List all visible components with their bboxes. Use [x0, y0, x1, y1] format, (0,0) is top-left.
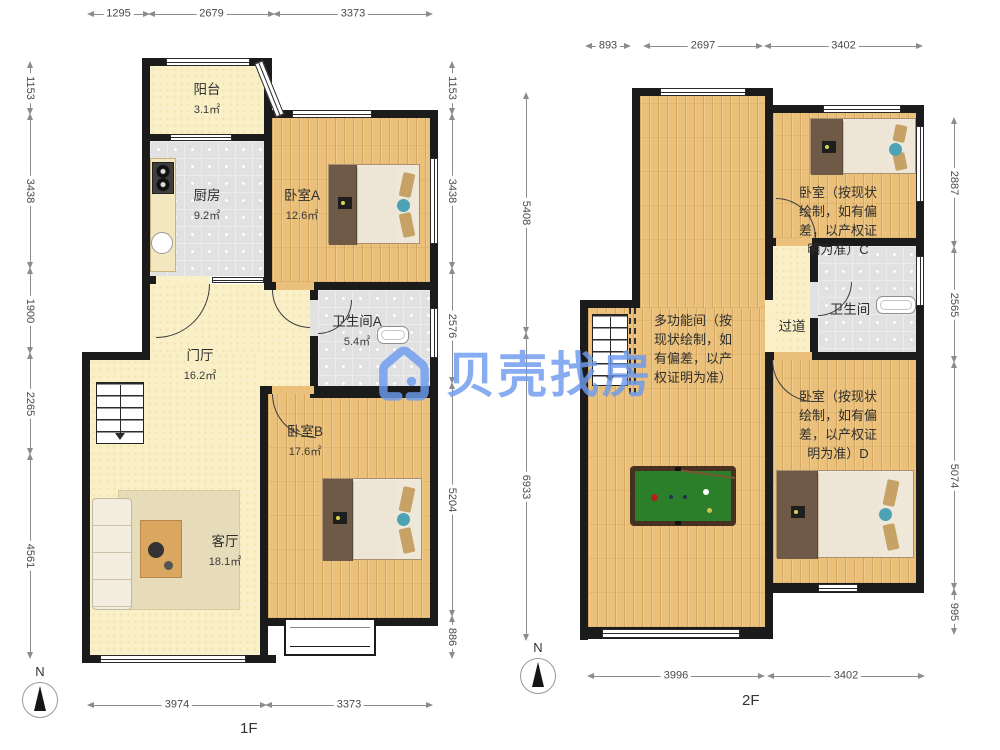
- room-floor-corridor: [773, 246, 810, 352]
- room-area: 16.2㎡: [152, 367, 248, 383]
- billiard-pocket: [675, 467, 681, 471]
- dimension-label: 3438: [24, 176, 36, 206]
- dimension-line: 3373: [266, 699, 432, 711]
- dimension-label: 3438: [446, 176, 458, 206]
- dimension-line: 3373: [274, 8, 432, 20]
- bed-pillow: [399, 172, 416, 198]
- kettle: [148, 542, 164, 558]
- room-label-bedroomB: 卧室B17.6㎡: [253, 424, 357, 459]
- dimension-line: 893: [586, 40, 630, 52]
- window: [660, 88, 746, 96]
- dimension-line: 995: [948, 589, 960, 634]
- room-name: 卧室B: [253, 424, 357, 441]
- dimension-label: 2265: [24, 388, 36, 418]
- staircase: [96, 382, 144, 444]
- bed-tv-dot: [336, 516, 340, 520]
- bed-round-pillow: [879, 508, 892, 521]
- room-label-living: 客厅18.1㎡: [176, 534, 274, 569]
- window: [292, 110, 372, 118]
- window: [818, 584, 858, 592]
- dimension-label: 886: [446, 625, 458, 649]
- dimension-line: 3974: [88, 699, 266, 711]
- window: [212, 277, 264, 283]
- dimension-label: 995: [948, 599, 960, 623]
- room-area: 12.6㎡: [250, 207, 354, 223]
- floor-label: 1F: [240, 720, 258, 737]
- dimension-line: 2697: [644, 40, 762, 52]
- dimension-line: 2265: [24, 353, 36, 454]
- kettle: [164, 561, 173, 570]
- dimension-line: 3438: [24, 114, 36, 268]
- floorplan-canvas: 阳台3.1㎡厨房9.2㎡卧室A12.6㎡卫生间A5.4㎡门厅16.2㎡卧室B17…: [0, 0, 1000, 750]
- dimension-line: 1295: [88, 8, 149, 20]
- dimension-label: 6933: [520, 471, 532, 501]
- dimension-label: 3974: [162, 698, 192, 711]
- bed-pillow: [399, 527, 416, 554]
- room-label-kitchen: 厨房9.2㎡: [162, 188, 252, 223]
- dimension-line: 3996: [588, 670, 764, 682]
- door-opening: [774, 352, 812, 360]
- bed-round-pillow: [397, 199, 410, 212]
- north-needle-icon: [532, 662, 544, 687]
- bed: [810, 118, 916, 174]
- dimension-line: 2565: [948, 247, 960, 362]
- bed-round-pillow: [889, 143, 902, 156]
- dimension-line: 1153: [24, 62, 36, 114]
- floor-label: 2F: [742, 692, 760, 709]
- dimension-line: 5408: [520, 93, 532, 333]
- room-label-bath: 卫生间: [808, 302, 892, 319]
- bed-pillow: [882, 479, 899, 507]
- dimension-line: 5204: [446, 383, 458, 616]
- bed-tv-dot: [794, 510, 798, 514]
- billiard-ball: [669, 495, 673, 499]
- dimension-label: 2679: [196, 7, 226, 20]
- room-label-corridor: 过道: [761, 319, 823, 336]
- dimension-line: 4561: [24, 454, 36, 658]
- dimension-line: 3402: [765, 40, 922, 52]
- wall: [82, 352, 150, 360]
- room-name: 卫生间: [808, 302, 892, 319]
- bed-pillow: [399, 486, 416, 513]
- bed-tv-dot: [825, 145, 829, 149]
- wall: [580, 300, 640, 308]
- dimension-label: 1295: [103, 7, 133, 20]
- billiard-ball: [683, 495, 687, 499]
- room-label-balcony: 阳台3.1㎡: [162, 82, 252, 117]
- room-area: 18.1㎡: [176, 553, 274, 569]
- room-label-bedroomD: 卧室（按现状绘制，如有偏差，以产权证明为准）D: [796, 388, 880, 463]
- window: [823, 105, 901, 113]
- wall: [260, 618, 268, 663]
- window: [916, 256, 924, 306]
- dimension-label: 2565: [948, 289, 960, 319]
- dimension-label: 2887: [948, 167, 960, 197]
- wall: [632, 88, 640, 308]
- wall: [142, 58, 150, 284]
- beike-logo-icon: [374, 340, 434, 404]
- room-floor-multi: [640, 96, 765, 308]
- dimension-label: 3373: [338, 7, 368, 20]
- wall: [142, 276, 150, 360]
- north-needle-icon: [34, 686, 46, 711]
- billiard-pocket: [675, 521, 681, 525]
- room-name: 客厅: [176, 534, 274, 551]
- dimension-line: 886: [446, 616, 458, 658]
- room-area: 9.2㎡: [162, 207, 252, 223]
- room-area: 3.1㎡: [162, 101, 252, 117]
- window: [916, 126, 924, 202]
- wall: [260, 386, 268, 626]
- dimension-line: 1153: [446, 62, 458, 114]
- room-name: 门厅: [152, 348, 248, 365]
- room-label-bedroomA: 卧室A12.6㎡: [250, 188, 354, 223]
- dimension-label: 4561: [24, 541, 36, 571]
- dimension-line: 5074: [948, 362, 960, 589]
- billiard-ball: [707, 508, 712, 513]
- north-label: N: [35, 664, 44, 679]
- bed-mattress: [353, 481, 397, 559]
- bed: [776, 470, 914, 558]
- dimension-line: 2887: [948, 118, 960, 247]
- billiard-ball: [703, 489, 709, 495]
- north-label: N: [533, 640, 542, 655]
- door-opening: [276, 282, 314, 290]
- room-area: 17.6㎡: [253, 443, 357, 459]
- window: [166, 58, 250, 66]
- bed-pillow: [882, 523, 899, 551]
- dimension-line: 1900: [24, 268, 36, 353]
- window: [170, 134, 232, 141]
- room-name: 卫生间A: [305, 314, 409, 331]
- bed-round-pillow: [397, 513, 410, 526]
- sink: [151, 232, 173, 254]
- dimension-label: 5204: [446, 484, 458, 514]
- north-compass: N: [518, 640, 558, 694]
- room-label-multi: 多功能间（按现状绘制，如有偏差，以产权证明为准）: [652, 312, 734, 387]
- sofa: [92, 498, 132, 610]
- dimension-label: 1900: [24, 295, 36, 325]
- dimension-label: 3402: [831, 669, 861, 682]
- dimension-line: 3402: [768, 670, 924, 682]
- billiard-ball: [651, 494, 658, 501]
- dimension-label: 3996: [661, 669, 691, 682]
- brand-watermark: 贝壳找房: [374, 336, 654, 407]
- room-label-bedroomC: 卧室（按现状绘制，如有偏差，以产权证明为准）C: [796, 184, 880, 259]
- window: [100, 655, 246, 663]
- room-name: 阳台: [162, 82, 252, 99]
- dimension-line: 2679: [149, 8, 274, 20]
- bed-mattress: [818, 473, 879, 557]
- billiard-cue: [680, 469, 735, 479]
- window: [602, 629, 740, 638]
- dimension-label: 5408: [520, 198, 532, 228]
- dimension-label: 2697: [688, 39, 718, 52]
- room-name: 卧室A: [250, 188, 354, 205]
- brand-watermark-text: 贝壳找房: [446, 336, 654, 407]
- wall: [82, 352, 90, 663]
- bed-mattress: [357, 167, 397, 243]
- bay-window: [284, 618, 376, 656]
- room-label-hall: 门厅16.2㎡: [152, 348, 248, 383]
- bed: [322, 478, 422, 560]
- door-opening: [272, 386, 314, 394]
- dimension-label: 3373: [334, 698, 364, 711]
- bed-pillow: [399, 212, 416, 238]
- dimension-label: 1153: [446, 73, 458, 103]
- bed-mattress: [843, 121, 890, 173]
- billiard-table: [630, 466, 736, 526]
- door-opening: [156, 276, 210, 284]
- dimension-label: 1153: [24, 73, 36, 103]
- window: [430, 158, 438, 244]
- dimension-label: 893: [596, 39, 620, 52]
- dimension-line: 3438: [446, 114, 458, 268]
- dimension-label: 3402: [828, 39, 858, 52]
- north-compass: N: [20, 664, 60, 718]
- room-name: 过道: [761, 319, 823, 336]
- bed-pillow: [892, 124, 907, 143]
- dimension-label: 5074: [948, 460, 960, 490]
- north-circle: [22, 682, 58, 718]
- room-name: 厨房: [162, 188, 252, 205]
- north-circle: [520, 658, 556, 694]
